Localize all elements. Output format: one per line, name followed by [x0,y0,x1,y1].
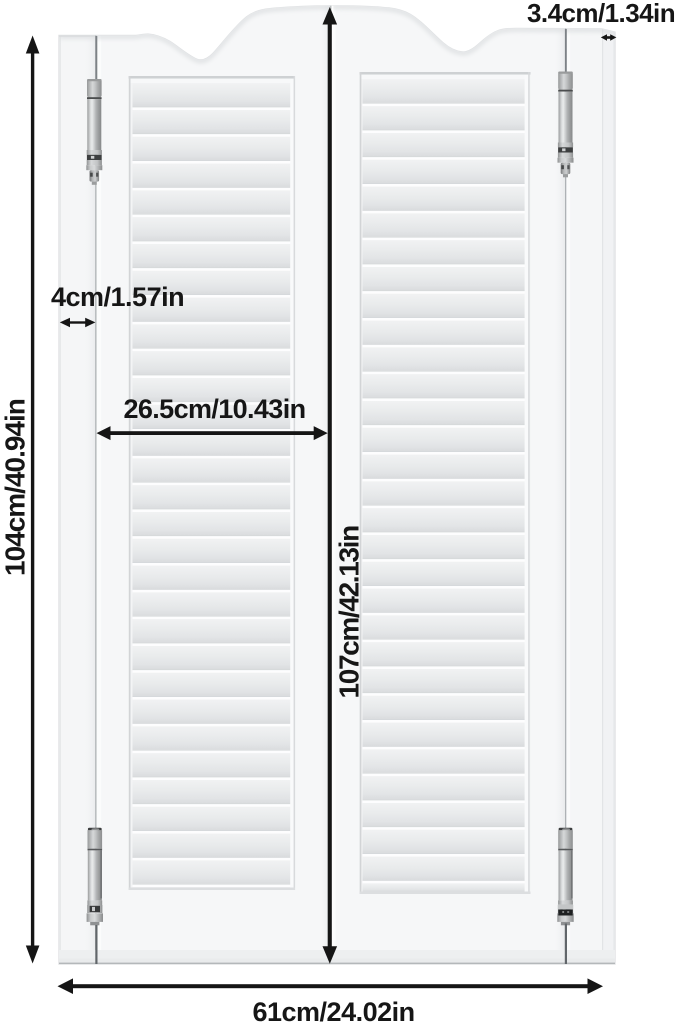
svg-text:61cm/24.02in: 61cm/24.02in [253,997,415,1024]
svg-text:4cm/1.57in: 4cm/1.57in [51,282,184,312]
svg-text:26.5cm/10.43in: 26.5cm/10.43in [124,394,306,424]
svg-text:107cm/42.13in: 107cm/42.13in [334,526,365,699]
svg-text:3.4cm/1.34in: 3.4cm/1.34in [527,0,675,28]
svg-text:104cm/40.94in: 104cm/40.94in [0,399,31,576]
